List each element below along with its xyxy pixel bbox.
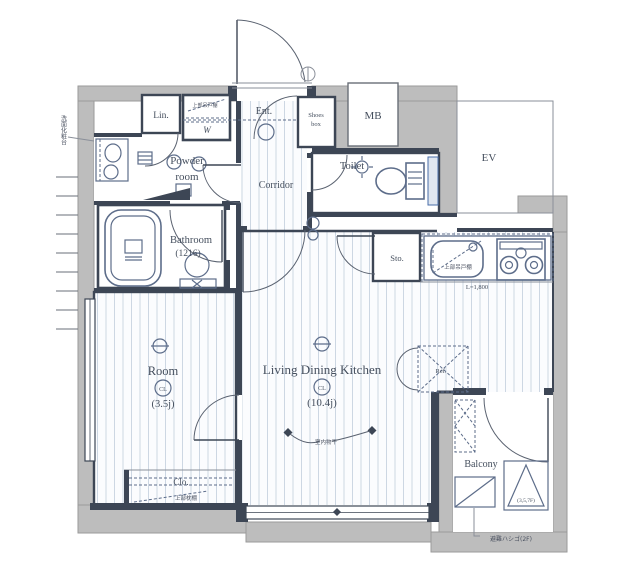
- label-closet-note: 上部枕棚: [175, 494, 198, 502]
- label-kitchen-note: 上部吊戸棚: [444, 263, 472, 271]
- entrance-door: [232, 20, 315, 88]
- label-lin: Lin.: [153, 111, 169, 121]
- label-washer-note: 上部吊戸棚: [192, 102, 217, 109]
- label-room-cl: CL: [159, 387, 167, 393]
- label-shoes-2: box: [311, 121, 322, 128]
- label-powder-1: Powder: [170, 155, 204, 167]
- label-vanity-note: 洗面化粧台: [60, 114, 67, 146]
- label-ev: EV: [482, 152, 497, 164]
- label-ldk: Living Dining Kitchen: [263, 362, 382, 377]
- label-storage: Sto.: [390, 253, 403, 263]
- label-bathroom: Bathroom: [170, 235, 212, 246]
- label-ldk-cl: CL: [318, 386, 326, 392]
- label-powder-2: room: [175, 171, 199, 183]
- label-ladder-note: 避難ハシゴ(2F): [490, 535, 532, 543]
- kitchen-counter: [420, 234, 553, 282]
- boundary-ticks: [56, 177, 78, 329]
- label-balcony: Balcony: [464, 459, 497, 470]
- label-toilet: Toilet: [340, 161, 364, 172]
- floor-plan-drawing: 室内物干 Lin. W 上部吊戸棚 Powder room E: [0, 0, 639, 572]
- label-corridor: Corridor: [259, 180, 294, 191]
- floor-powder-room: [94, 137, 236, 201]
- label-shoes-1: Shoes: [308, 112, 324, 119]
- label-closet: Clo.: [173, 477, 188, 487]
- label-bathroom-size: (1216): [175, 248, 200, 259]
- label-hatch-floors: (3,5,7F): [517, 497, 535, 504]
- label-kitchen-length: L=1,800: [466, 284, 488, 291]
- label-refrigerator: Ref.: [435, 368, 446, 375]
- label-ldk-size: (10.4j): [307, 397, 337, 409]
- label-entrance: Ent.: [256, 106, 272, 117]
- label-room-size: (3.5j): [151, 399, 175, 410]
- label-mb: MB: [364, 110, 381, 122]
- indoor-drying-note: 室内物干: [315, 438, 338, 446]
- label-room: Room: [148, 364, 179, 378]
- floor-plan: 室内物干 Lin. W 上部吊戸棚 Powder room E: [0, 0, 639, 572]
